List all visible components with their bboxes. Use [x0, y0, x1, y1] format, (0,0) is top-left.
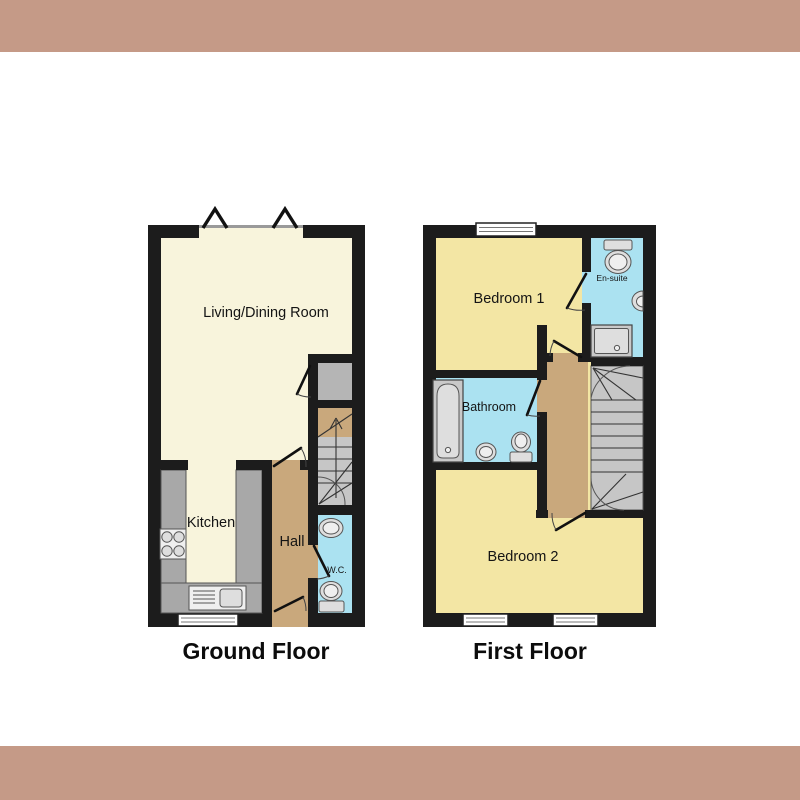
wc-basin-icon	[319, 519, 343, 538]
bathroom-toilet-icon	[510, 432, 532, 462]
first-floor-plan: Bedroom 1 En-suite Bathroom Bedroom 2 Fi…	[423, 223, 656, 664]
floorplan-drawing: Living/Dining Room Kitchen Hall W.C. Gro…	[0, 0, 800, 800]
room-label-bedroom1: Bedroom 1	[474, 291, 545, 307]
cooktop-icon	[160, 529, 186, 559]
landing-floor	[546, 362, 588, 510]
shower-tray-icon	[591, 325, 632, 357]
first-floor-title: First Floor	[473, 638, 587, 664]
room-label-wc: W.C.	[327, 565, 347, 575]
first-staircase	[591, 366, 643, 510]
bedroom2-window	[463, 614, 508, 626]
kitchen-counter-right	[236, 470, 262, 583]
ground-floor-plan: Living/Dining Room Kitchen Hall W.C. Gro…	[148, 209, 365, 664]
wc-toilet-icon	[319, 582, 344, 613]
patio-opening-line	[199, 225, 303, 228]
room-label-living-dining: Living/Dining Room	[203, 305, 329, 321]
bedroom1-window	[476, 223, 536, 236]
patio-opening-floor	[199, 228, 303, 238]
kitchen-sink-icon	[189, 586, 246, 610]
room-label-ensuite: En-suite	[596, 273, 627, 283]
stairs-upper-landing	[318, 408, 352, 437]
front-door-opening	[272, 613, 308, 627]
cupboard-floor	[314, 360, 352, 402]
bedroom2-window	[553, 614, 598, 626]
room-label-bathroom: Bathroom	[462, 400, 516, 414]
ensuite-toilet-icon	[604, 240, 632, 274]
room-label-bedroom2: Bedroom 2	[488, 549, 559, 565]
bath-icon	[433, 380, 463, 462]
ground-floor-title: Ground Floor	[183, 638, 330, 664]
floorplan-page: Living/Dining Room Kitchen Hall W.C. Gro…	[0, 0, 800, 800]
room-label-hall: Hall	[280, 534, 305, 550]
kitchen-window	[178, 614, 238, 626]
room-label-kitchen: Kitchen	[187, 515, 235, 531]
bathroom-basin-icon	[476, 443, 496, 461]
